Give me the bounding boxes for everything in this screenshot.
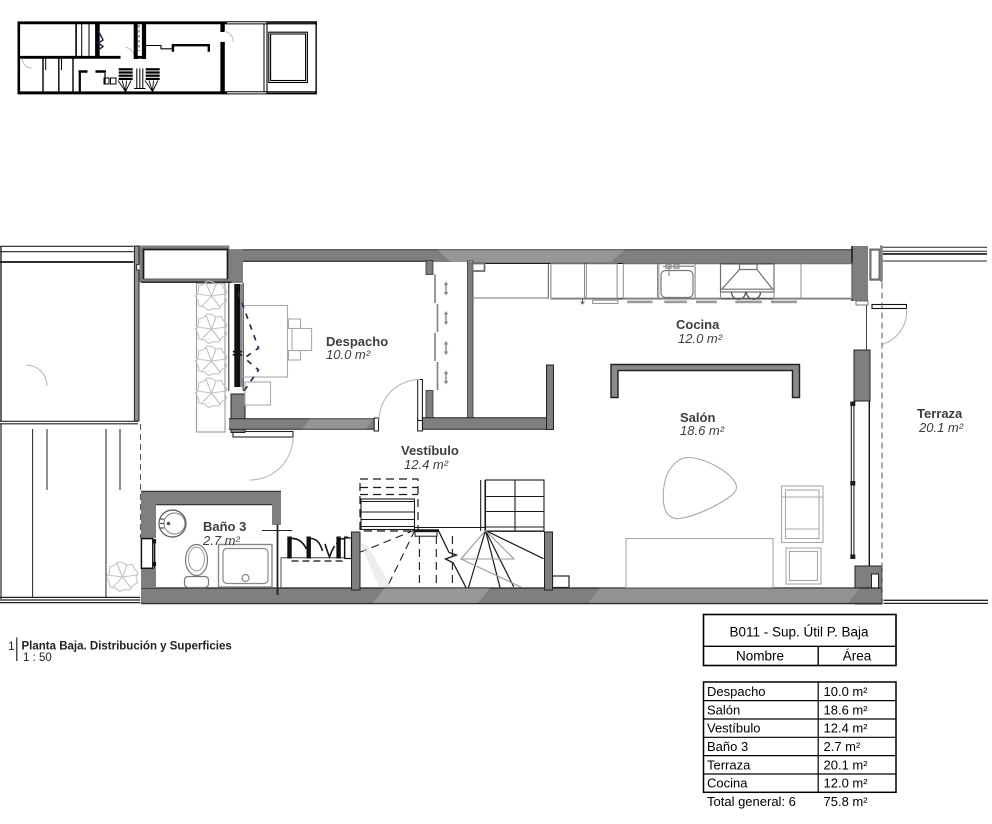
svg-text:1: 1 <box>8 639 15 653</box>
svg-text:Baño 3: Baño 3 <box>203 519 246 534</box>
svg-text:Cocina: Cocina <box>707 776 748 791</box>
svg-text:20.1 m²: 20.1 m² <box>918 420 964 435</box>
svg-text:12.4 m²: 12.4 m² <box>404 457 449 472</box>
svg-text:Terraza: Terraza <box>707 757 751 772</box>
svg-text:Salón: Salón <box>707 702 740 717</box>
svg-text:18.6 m²: 18.6 m² <box>824 702 869 717</box>
svg-text:Vestíbulo: Vestíbulo <box>707 721 761 736</box>
svg-text:Total general: 6: Total general: 6 <box>707 794 796 809</box>
svg-text:18.6 m²: 18.6 m² <box>680 423 725 438</box>
svg-text:Despacho: Despacho <box>707 684 766 699</box>
svg-text:Área: Área <box>843 649 872 664</box>
svg-text:Planta Baja. Distribución y Su: Planta Baja. Distribución y Superficies <box>22 641 232 653</box>
svg-text:Nombre: Nombre <box>736 649 784 664</box>
svg-text:12.4 m²: 12.4 m² <box>824 721 869 736</box>
svg-text:20.1 m²: 20.1 m² <box>824 757 869 772</box>
svg-text:12.0 m²: 12.0 m² <box>678 331 723 346</box>
svg-text:10.0 m²: 10.0 m² <box>824 684 869 699</box>
svg-text:75.8 m²: 75.8 m² <box>824 794 869 809</box>
svg-text:Vestíbulo: Vestíbulo <box>401 443 459 458</box>
svg-text:1 : 50: 1 : 50 <box>23 652 52 664</box>
svg-text:B011 - Sup. Útil P. Baja: B011 - Sup. Útil P. Baja <box>729 625 869 640</box>
svg-text:Cocina: Cocina <box>676 317 720 332</box>
svg-text:2.7 m²: 2.7 m² <box>202 533 241 548</box>
svg-text:Terraza: Terraza <box>917 406 963 421</box>
svg-text:Baño 3: Baño 3 <box>707 739 748 754</box>
svg-text:10.0 m²: 10.0 m² <box>326 347 371 362</box>
svg-text:2.7 m²: 2.7 m² <box>824 739 862 754</box>
svg-text:12.0 m²: 12.0 m² <box>824 776 869 791</box>
